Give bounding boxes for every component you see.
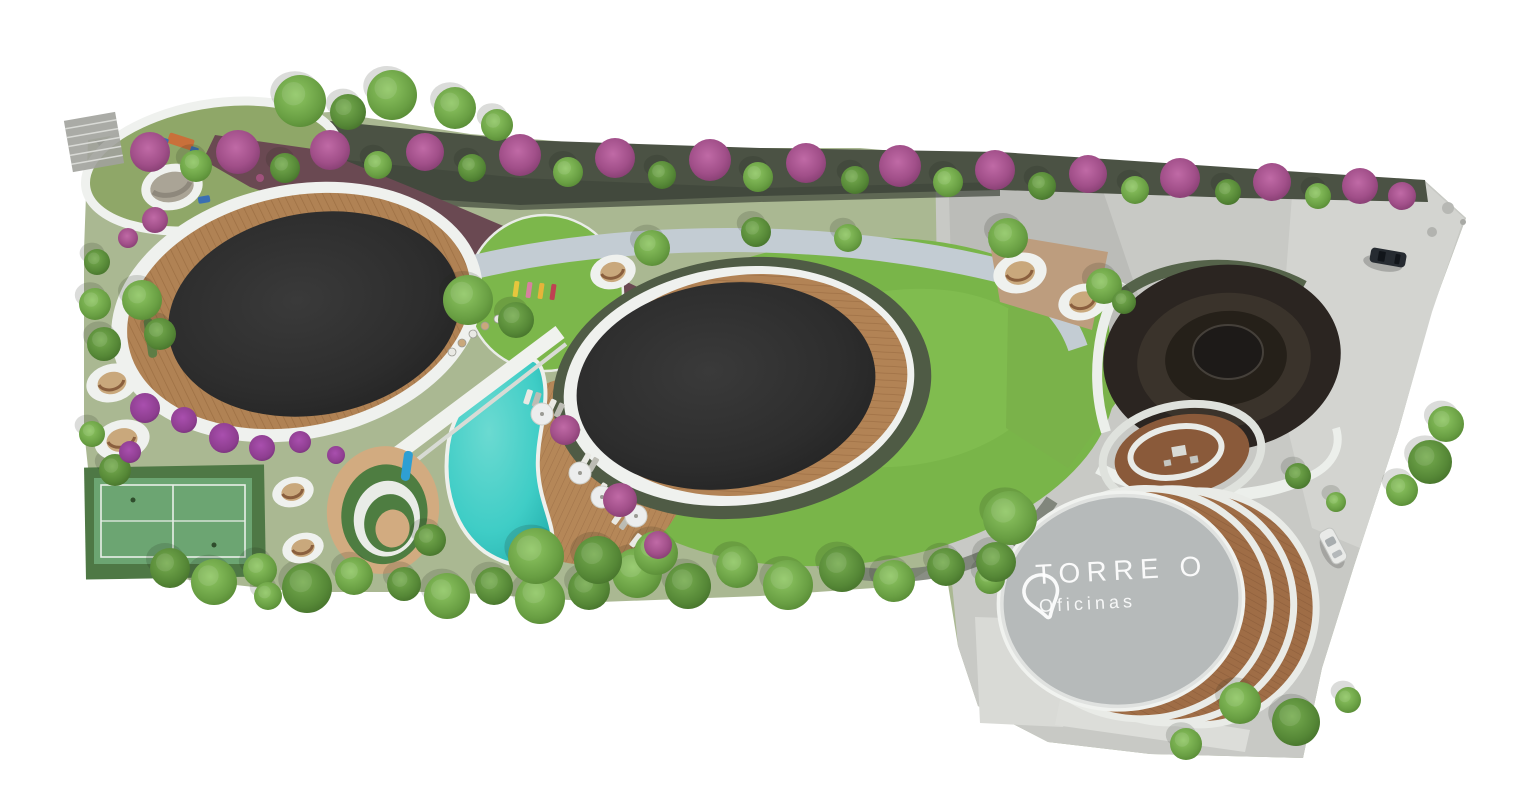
parasol <box>531 403 553 425</box>
tree-highlight <box>481 572 498 589</box>
flower-shrub <box>1388 182 1416 210</box>
flower-shrub <box>1342 168 1378 204</box>
flower-shrub <box>1160 158 1200 198</box>
flower-shrub <box>786 143 826 183</box>
parasol <box>569 462 591 484</box>
cafe-table <box>458 339 466 347</box>
tree-highlight <box>92 332 107 347</box>
tree-highlight <box>771 567 794 590</box>
flower-shrub <box>595 138 635 178</box>
court-player <box>212 543 217 548</box>
tree-highlight <box>419 528 433 542</box>
tree-highlight <box>1225 688 1244 707</box>
tree-highlight <box>845 170 858 183</box>
flower-shrub <box>879 145 921 187</box>
flower-shrub <box>327 446 345 464</box>
flower-shrub <box>249 435 275 461</box>
tree-highlight <box>558 161 572 175</box>
tree-highlight <box>672 569 693 590</box>
site-plan-rendering: TORRE O Oficinas <box>0 0 1536 810</box>
tree-highlight <box>991 498 1015 522</box>
tree-highlight <box>104 458 118 472</box>
tree-highlight <box>335 99 351 115</box>
court-player <box>131 498 136 503</box>
tree-highlight <box>198 565 219 586</box>
flower-shrub <box>119 441 141 463</box>
tree-highlight <box>826 552 847 573</box>
tree-highlight <box>486 113 500 127</box>
flower-shrub <box>550 415 580 445</box>
tree-highlight <box>581 542 603 564</box>
tree-highlight <box>1219 183 1231 195</box>
parasol-pole <box>634 514 638 518</box>
tree-highlight <box>938 171 952 185</box>
flower-shrub <box>216 130 260 174</box>
tree-highlight <box>431 579 452 600</box>
tree-highlight <box>879 566 898 585</box>
tree-highlight <box>933 553 950 570</box>
tower-title: TORRE O <box>1035 551 1209 591</box>
cafe-table <box>448 348 456 356</box>
tree-highlight <box>149 322 163 336</box>
tree-highlight <box>341 562 358 579</box>
flower-shrub <box>644 531 672 559</box>
tree-highlight <box>746 221 760 235</box>
tree-highlight <box>128 285 146 303</box>
tree-highlight <box>1175 732 1189 746</box>
tree-highlight <box>1391 478 1405 492</box>
flower-shrub <box>499 134 541 176</box>
plaza-stone <box>1442 202 1454 214</box>
flower-shrub <box>130 393 160 423</box>
cafe-table <box>469 330 477 338</box>
tree-highlight <box>1125 180 1138 193</box>
flower-shrub <box>142 207 168 233</box>
tree-highlight <box>83 425 95 437</box>
tree-highlight <box>1091 273 1107 289</box>
cafe-table <box>481 322 489 330</box>
tree-highlight <box>639 235 655 251</box>
tree-highlight <box>1032 176 1045 189</box>
parasol-pole <box>540 412 544 416</box>
tree-highlight <box>1433 411 1449 427</box>
flower-shrub <box>289 431 311 453</box>
tree-highlight <box>982 547 1000 565</box>
tree-highlight <box>392 572 407 587</box>
plaza-stone <box>1460 219 1466 225</box>
tree-highlight <box>1309 187 1321 199</box>
flower-shrub <box>406 133 444 171</box>
tree-highlight <box>462 158 475 171</box>
tree-highlight <box>748 166 762 180</box>
flower-shrub <box>603 483 637 517</box>
tree-highlight <box>440 93 459 112</box>
tree-highlight <box>290 570 313 593</box>
tree-highlight <box>84 292 98 306</box>
flower-shrub <box>1253 163 1291 201</box>
flower-shrub <box>689 139 731 181</box>
tree-highlight <box>1329 495 1338 504</box>
parasol-pole <box>578 471 582 475</box>
tree-highlight <box>375 77 398 100</box>
tree-highlight <box>282 82 305 105</box>
tree-highlight <box>451 282 474 305</box>
tree-highlight <box>1339 691 1351 703</box>
tree-highlight <box>185 154 199 168</box>
tree-highlight <box>516 536 541 561</box>
tree-highlight <box>156 553 174 571</box>
tree-highlight <box>88 253 100 265</box>
pergola <box>64 112 124 172</box>
tree-highlight <box>275 157 289 171</box>
tree-highlight <box>838 228 851 241</box>
tree-highlight <box>368 155 381 168</box>
site-plan-canvas <box>0 0 1536 810</box>
flower-shrub <box>310 130 350 170</box>
torre-o-label[interactable]: TORRE O Oficinas <box>1021 551 1210 617</box>
tree-highlight <box>722 552 741 571</box>
tree-highlight <box>1289 467 1301 479</box>
flower-shrub <box>1069 155 1107 193</box>
tree-highlight <box>258 586 271 599</box>
tree-highlight <box>652 165 665 178</box>
plaza-stone <box>1427 227 1437 237</box>
flower-shrub <box>975 150 1015 190</box>
flower-shrub <box>209 423 239 453</box>
flower-shrub <box>130 132 170 172</box>
tree-highlight <box>1279 704 1301 726</box>
tree-highlight <box>523 581 546 604</box>
tree-highlight <box>503 307 519 323</box>
flower-shrub <box>118 228 138 248</box>
tree-highlight <box>248 558 263 573</box>
tree-highlight <box>1415 446 1435 466</box>
flower-shrub <box>171 407 197 433</box>
tree-highlight <box>994 223 1012 241</box>
tree-highlight <box>1116 293 1127 304</box>
